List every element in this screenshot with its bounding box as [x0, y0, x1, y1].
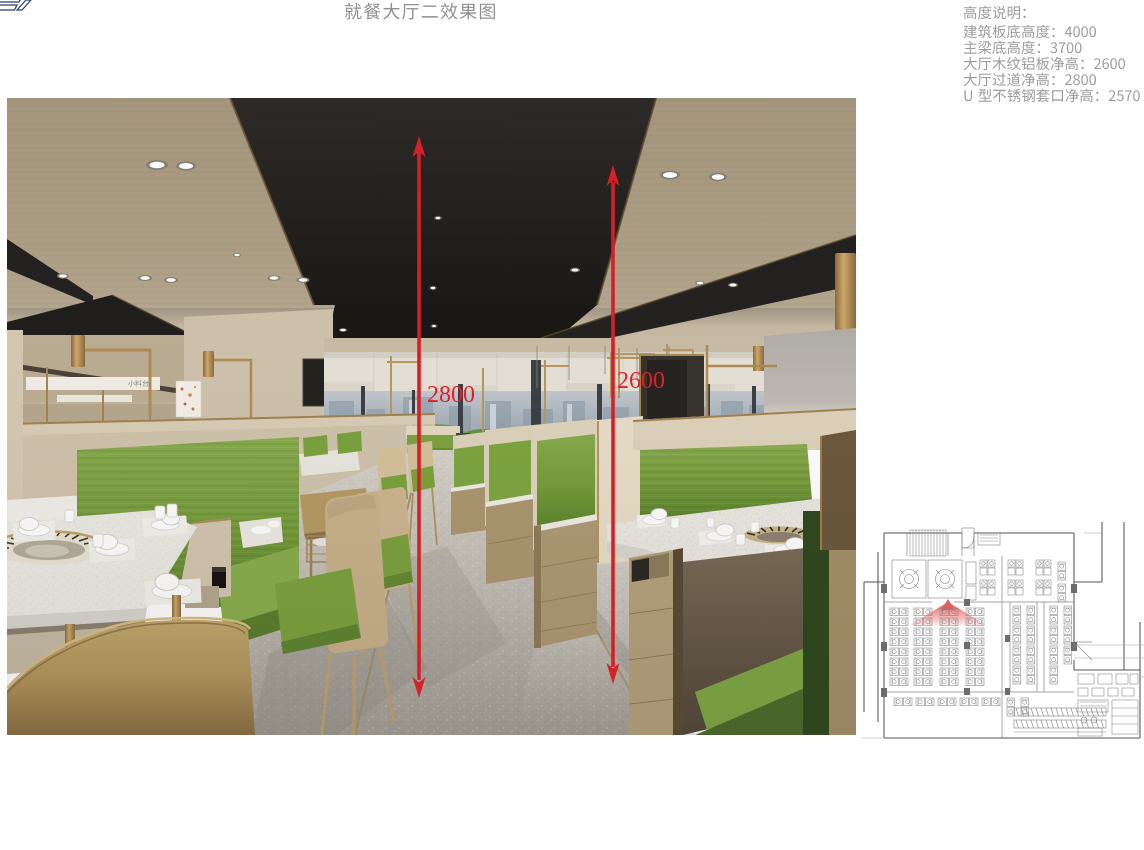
svg-text:2600: 2600 — [617, 368, 665, 394]
svg-text:2800: 2800 — [427, 382, 475, 408]
